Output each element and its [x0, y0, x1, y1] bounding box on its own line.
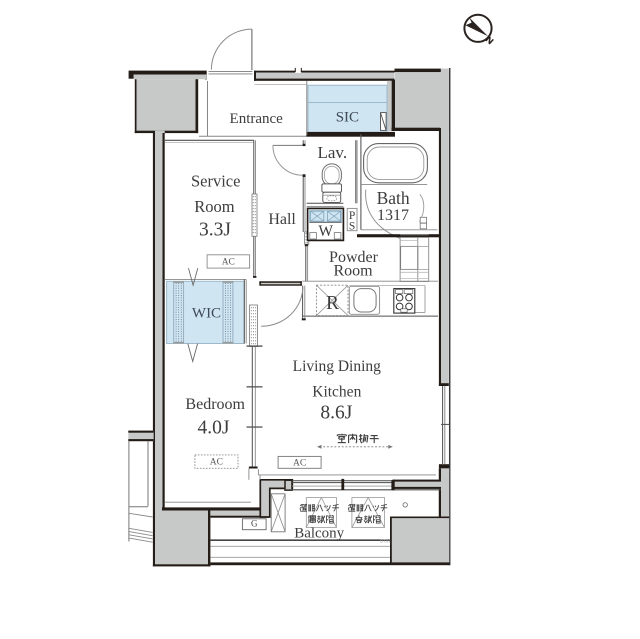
svg-text:Service: Service [191, 172, 240, 191]
svg-text:S: S [349, 221, 355, 233]
svg-text:Kitchen: Kitchen [312, 384, 361, 401]
svg-text:Lav.: Lav. [318, 143, 348, 162]
svg-text:1317: 1317 [377, 207, 409, 224]
svg-text:Living Dining: Living Dining [293, 358, 382, 375]
svg-text:AC: AC [210, 458, 223, 468]
svg-text:AC: AC [293, 459, 306, 469]
svg-text:G: G [251, 519, 258, 529]
svg-text:Hall: Hall [268, 211, 296, 228]
svg-text:Balcony: Balcony [294, 525, 344, 541]
svg-text:AC: AC [222, 258, 235, 268]
svg-text:Bath: Bath [377, 188, 410, 208]
svg-text:Bedroom: Bedroom [185, 396, 245, 413]
svg-text:8.6J: 8.6J [320, 403, 352, 424]
svg-text:BT01: BT01 [380, 539, 391, 544]
svg-text:W: W [318, 223, 333, 240]
svg-text:WIC: WIC [192, 305, 221, 321]
svg-text:Room: Room [333, 263, 373, 280]
svg-text:R: R [326, 293, 339, 314]
svg-text:Entrance: Entrance [230, 111, 284, 127]
svg-text:SIC: SIC [336, 109, 359, 125]
svg-text:3.3J: 3.3J [199, 220, 231, 241]
svg-text:Room: Room [194, 197, 235, 216]
svg-text:4.0J: 4.0J [198, 418, 230, 439]
